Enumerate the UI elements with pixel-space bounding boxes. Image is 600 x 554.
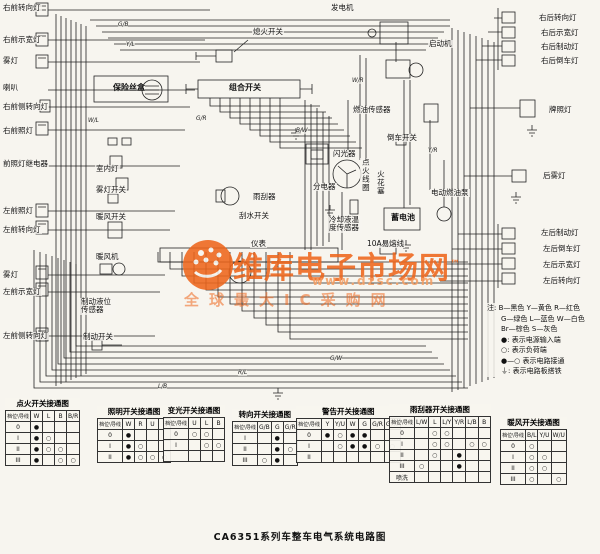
table-cell [189,440,201,451]
table-header-cell: L/Y [441,417,453,428]
label-left-rear-reverse-lamp: 左后倒车灯 [542,245,582,253]
table-header-cell: G/B [258,422,272,433]
table-cell [371,452,385,463]
table-cell [67,444,80,455]
lamp-symbols-right [498,8,535,288]
label-fog-switch: 雾灯开关 [95,186,127,194]
table-cell [466,472,478,483]
table-corner-cell: 档位\导线 [98,419,123,430]
table-title: 暖风开关接通图 [500,417,567,428]
table-title: 转向开关接通图 [232,409,298,420]
label-kill-switch: 熄火开关 [252,28,284,36]
table-cell [43,422,55,433]
table-cell [478,428,490,439]
label-distributor: 分电器 [312,183,337,191]
table-cell [478,461,490,472]
table-corner-cell: 档位\导线 [164,418,189,429]
legend-symbol-line: ●: 表示电源输入端 [487,335,599,346]
table-row-header: 0 [164,429,189,440]
label-fuel-sensor: 燃油传感器 [352,106,392,114]
table-cell [551,452,566,463]
table-cell: ○ [135,452,147,463]
table-cell [453,428,466,439]
table-cell [371,430,385,441]
switch-connection-table: 档位\导线B/LY/UW/U0○I○○II○○III○○ [500,429,567,485]
table-cell [67,422,80,433]
legend-prefix: 注: [487,304,496,312]
table-header-cell: L/W [415,417,429,428]
table-cell [538,474,551,485]
table-cell: ○ [334,441,347,452]
table-row-header: III [6,455,31,466]
table-row-header: I [233,433,258,444]
table-cell [67,433,80,444]
table-cell: ○ [526,452,538,463]
table-header-cell: Y/U [334,419,347,430]
table-hazard-switch: 警告开关接通图档位\导线YY/UWGG/RG/W0●○●●I○●●○○II [296,406,401,463]
table-cell [429,461,441,472]
label-combo-switch: 组合开关 [228,84,262,93]
table-header-cell: L/B [466,417,478,428]
label-rear-fog-lamp: 后雾灯 [542,172,567,180]
table-row-header: I [98,441,123,452]
table-header-cell: B [55,411,67,422]
table-cell: ○ [441,428,453,439]
table-cell: ● [271,433,283,444]
table-row-header: II [297,452,322,463]
label-front-fog-lamp: 雾灯 [2,57,19,65]
table-cell: ● [453,461,466,472]
table-cell [466,450,478,461]
table-cell: ○ [371,441,385,452]
legend-symbol-line: ⏚: 表示电路板搭铁 [487,366,599,377]
wire-fan-instrument [158,252,468,339]
table-cell [466,428,478,439]
table-cell [334,452,347,463]
table-cell: ● [31,433,43,444]
label-reverse-switch: 倒车开关 [386,134,418,142]
table-cell [258,444,272,455]
label-left-front-marker-lamp: 左前示宽灯 [2,288,42,296]
table-cell: ● [123,441,135,452]
table-corner-cell: 档位\导线 [6,411,31,422]
table-cell: ● [359,430,371,441]
table-cell: ○ [55,455,67,466]
label-left-rear-turn-lamp: 左后转向灯 [542,277,582,285]
label-front-fog-lamp-2: 雾灯 [2,271,19,279]
switch-connection-table: 档位\导线G/BGG/RI●II●○III○● [232,421,298,466]
table-header-cell: L [43,411,55,422]
table-cell [415,472,429,483]
table-title: 变光开关接通图 [163,405,225,416]
wire-code: W/R [352,78,364,84]
table-cell: ● [347,430,359,441]
table-corner-cell: 档位\导线 [501,430,526,441]
table-cell [55,433,67,444]
table-row-header: 0 [501,441,526,452]
table-cell: ○ [415,461,429,472]
label-right-rear-turn-lamp: 右后转向灯 [538,14,578,22]
table-cell [55,422,67,433]
table-cell [429,472,441,483]
label-right-headlamp: 右前照灯 [2,127,34,135]
table-row-header: 0 [6,422,31,433]
table-wiper-switch: 雨刮器开关接通图档位\导线L/WLL/YY/RL/BB0○○I○○○○II○●I… [389,404,491,483]
table-corner-cell: 档位\导线 [390,417,415,428]
legend: 注: B—黑色 Y—黄色 R—红色 G—绿色 L—蓝色 W—白色 Br—棕色 S… [487,303,599,377]
label-left-front-turn-lamp: 左前转向灯 [2,226,42,234]
table-cell: ● [322,430,334,441]
table-row-header: I [501,452,526,463]
table-dimmer-switch: 变光开关接通图档位\导线ULB0○○I○○ [163,405,225,462]
table-cell [466,461,478,472]
label-instrument: 仪表 [250,240,267,248]
label-brake-fluid-sensor: 制动液位传感器 [80,298,116,315]
table-cell: ○ [526,441,538,452]
label-left-rear-marker-lamp: 左后示宽灯 [542,261,582,269]
table-cell [478,472,490,483]
label-left-rear-brake-lamp: 左后制动灯 [540,229,580,237]
table-cell: ○ [526,474,538,485]
label-plate-lamp: 牌照灯 [548,106,573,114]
table-row-header: I [6,433,31,444]
table-title: 警告开关接通图 [296,406,401,417]
table-header-cell: W/U [551,430,566,441]
switch-connection-table: 档位\导线WLBB/R0●I●○II●○○III●○○ [5,410,80,466]
table-cell: ○ [538,452,551,463]
table-corner-cell: 档位\导线 [233,422,258,433]
schematic-page: 右前转向灯 右前示宽灯 雾灯 喇叭 右前侧转向灯 右前照灯 前照灯继电器 左前照… [0,0,600,554]
table-cell: ○ [189,429,201,440]
table-cell: ○ [147,452,159,463]
label-interior-light: 室内灯 [95,165,120,173]
table-title: 照明开关接通图 [97,406,171,417]
table-cell: ● [123,430,135,441]
table-cell [415,450,429,461]
switch-connection-table: 档位\导线L/WLL/YY/RL/BB0○○I○○○○II○●III○●喷洗 [389,416,491,483]
table-cell [189,451,201,462]
table-row-header: II [6,444,31,455]
table-header-cell: Y [322,419,334,430]
table-cell [551,463,566,474]
legend-color-line: G—绿色 L—蓝色 W—白色 [487,314,599,325]
table-cell: ● [347,441,359,452]
table-cell [43,455,55,466]
table-row-header: 0 [297,430,322,441]
switch-connection-table: 档位\导线WRUB0●I●○II●○○○ [97,418,171,463]
wire-code: W/L [88,118,99,124]
table-cell: ○ [429,439,441,450]
table-cell [135,430,147,441]
table-cell: ● [123,452,135,463]
component-symbols [92,22,451,350]
label-fuel-pump: 电动燃油泵 [430,189,470,197]
table-cell: ● [359,441,371,452]
wire-bundle-left-bus [48,10,210,386]
switch-connection-table: 档位\导线YY/UWGG/RG/W0●○●●I○●●○○II [296,418,401,463]
table-cell: ○ [201,440,213,451]
table-header-cell: B/L [526,430,538,441]
label-starter: 启动机 [428,40,453,48]
table-cell: ○ [334,430,347,441]
table-row-header: 喷洗 [390,472,415,483]
table-cell [147,430,159,441]
label-right-front-turn-lamp: 右前转向灯 [2,4,42,12]
table-cell [415,439,429,450]
label-fuse-box: 保险丝盒 [112,84,146,93]
table-row-header: I [390,439,415,450]
table-cell [551,441,566,452]
legend-color-text: B—黑色 Y—黄色 R—红色 [499,304,580,312]
table-header-cell: B [478,417,490,428]
table-row-header: I [164,440,189,451]
table-cell [347,452,359,463]
table-cell [441,472,453,483]
table-header-cell: B [213,418,225,429]
label-right-rear-brake-lamp: 右后制动灯 [540,43,580,51]
table-cell: ○ [258,455,272,466]
table-cell [453,472,466,483]
table-cell: ○ [135,441,147,452]
table-row-header: II [390,450,415,461]
table-header-cell: G/R [371,419,385,430]
label-wiper-switch: 刮水开关 [238,212,270,220]
table-cell: ○ [67,455,80,466]
table-cell [322,452,334,463]
table-header-cell: W [123,419,135,430]
table-cell: ○ [551,474,566,485]
table-row-header: III [233,455,258,466]
table-header-cell: W [31,411,43,422]
wire-code: G/W [330,356,342,362]
label-horn: 喇叭 [2,84,19,92]
table-cell: ○ [478,439,490,450]
label-wiper-motor: 雨刮器 [252,193,277,201]
label-left-headlamp: 左前照灯 [2,207,34,215]
table-cell: ○ [538,463,551,474]
switch-connection-table: 档位\导线ULB0○○I○○ [163,417,225,462]
table-cell: ○ [55,444,67,455]
legend-symbol-line: ●—○ 表示电路接通 [487,356,599,367]
table-row-header: II [501,463,526,474]
label-coolant-sensor: 冷却液温度传感器 [328,216,362,233]
table-row-header: 0 [98,430,123,441]
table-cell: ○ [526,463,538,474]
table-cell: ● [31,455,43,466]
table-turn-switch: 转向开关接通图档位\导线G/BGG/RI●II●○III○● [232,409,298,466]
wire-code: R/L [238,370,247,376]
table-cell [322,441,334,452]
table-cell: ○ [441,439,453,450]
label-right-rear-marker-lamp: 右后示宽灯 [540,29,580,37]
label-generator: 发电机 [330,4,355,12]
legend-color-line: 注: B—黑色 Y—黄色 R—红色 [487,303,599,314]
table-cell: ○ [429,450,441,461]
wire-code: L/B [158,384,167,390]
table-header-cell: Y/U [538,430,551,441]
legend-symbol-line: ○: 表示负荷端 [487,345,599,356]
label-left-side-turn-lamp: 左前侧转向灯 [2,332,49,340]
table-header-cell: Y/R [453,417,466,428]
label-fusible-link: 10A易熔线 [366,240,405,248]
wire-code: Y/L [126,42,135,48]
wire-code: G/R [196,116,206,122]
table-row-header: II [98,452,123,463]
label-headlamp-relay: 前照灯继电器 [2,160,49,168]
label-heater-fan: 暖风机 [95,253,120,261]
table-ignition-switch: 点火开关接通图档位\导线WLBB/R0●I●○II●○○III●○○ [5,398,80,466]
diagram-title: CA6351系列车整车电气系统电路图 [0,529,600,543]
table-cell [258,433,272,444]
table-cell [453,439,466,450]
table-cell [441,461,453,472]
wire-code: G/B [118,22,128,28]
table-header-cell: L [201,418,213,429]
table-cell: ○ [213,440,225,451]
table-cell [359,452,371,463]
table-cell [538,441,551,452]
table-title: 雨刮器开关接通图 [389,404,491,415]
table-header-cell: U [147,419,159,430]
wire-bundle-center [305,42,444,250]
table-header-cell: G [359,419,371,430]
label-ignition-coil: 点火线圈 [360,158,370,192]
table-cell [478,450,490,461]
wire-code: Y/R [428,148,438,154]
table-row-header [164,451,189,462]
label-right-side-turn-lamp: 右前侧转向灯 [2,103,49,111]
table-cell: ○ [43,444,55,455]
table-cell [201,451,213,462]
wire-code: B/W [296,128,308,134]
table-header-cell: W [347,419,359,430]
label-spark-plug: 火花塞 [375,170,385,196]
label-flasher: 闪光器 [332,150,357,158]
table-cell: ● [31,422,43,433]
table-cell: ○ [466,439,478,450]
table-cell: ● [31,444,43,455]
table-header-cell: R [135,419,147,430]
label-brake-switch: 制动开关 [82,333,114,341]
label-battery: 蓄电池 [390,214,416,223]
table-row-header: I [297,441,322,452]
table-cell [213,451,225,462]
table-header-cell: L [429,417,441,428]
legend-color-line: Br—棕色 S—灰色 [487,324,599,335]
table-row-header: II [233,444,258,455]
table-cell [415,428,429,439]
label-heater-switch: 暖风开关 [95,213,127,221]
table-cell: ● [271,455,283,466]
table-lighting-switch: 照明开关接通图档位\导线WRUB0●I●○II●○○○ [97,406,171,463]
table-corner-cell: 档位\导线 [297,419,322,430]
table-cell [441,450,453,461]
label-right-front-marker-lamp: 右前示宽灯 [2,36,42,44]
table-cell: ○ [201,429,213,440]
table-cell: ○ [43,433,55,444]
table-row-header: 0 [390,428,415,439]
table-header-cell: U [189,418,201,429]
table-header-cell: G [271,422,283,433]
table-cell [147,441,159,452]
table-row-header: III [390,461,415,472]
table-cell: ○ [429,428,441,439]
table-cell: ● [271,444,283,455]
table-header-cell: B/R [67,411,80,422]
table-cell: ● [453,450,466,461]
table-title: 点火开关接通图 [5,398,80,409]
table-heater-switch: 暖风开关接通图档位\导线B/LY/UW/U0○I○○II○○III○○ [500,417,567,485]
label-right-rear-reverse-lamp: 右后倒车灯 [540,57,580,65]
table-cell [213,429,225,440]
table-row-header: III [501,474,526,485]
